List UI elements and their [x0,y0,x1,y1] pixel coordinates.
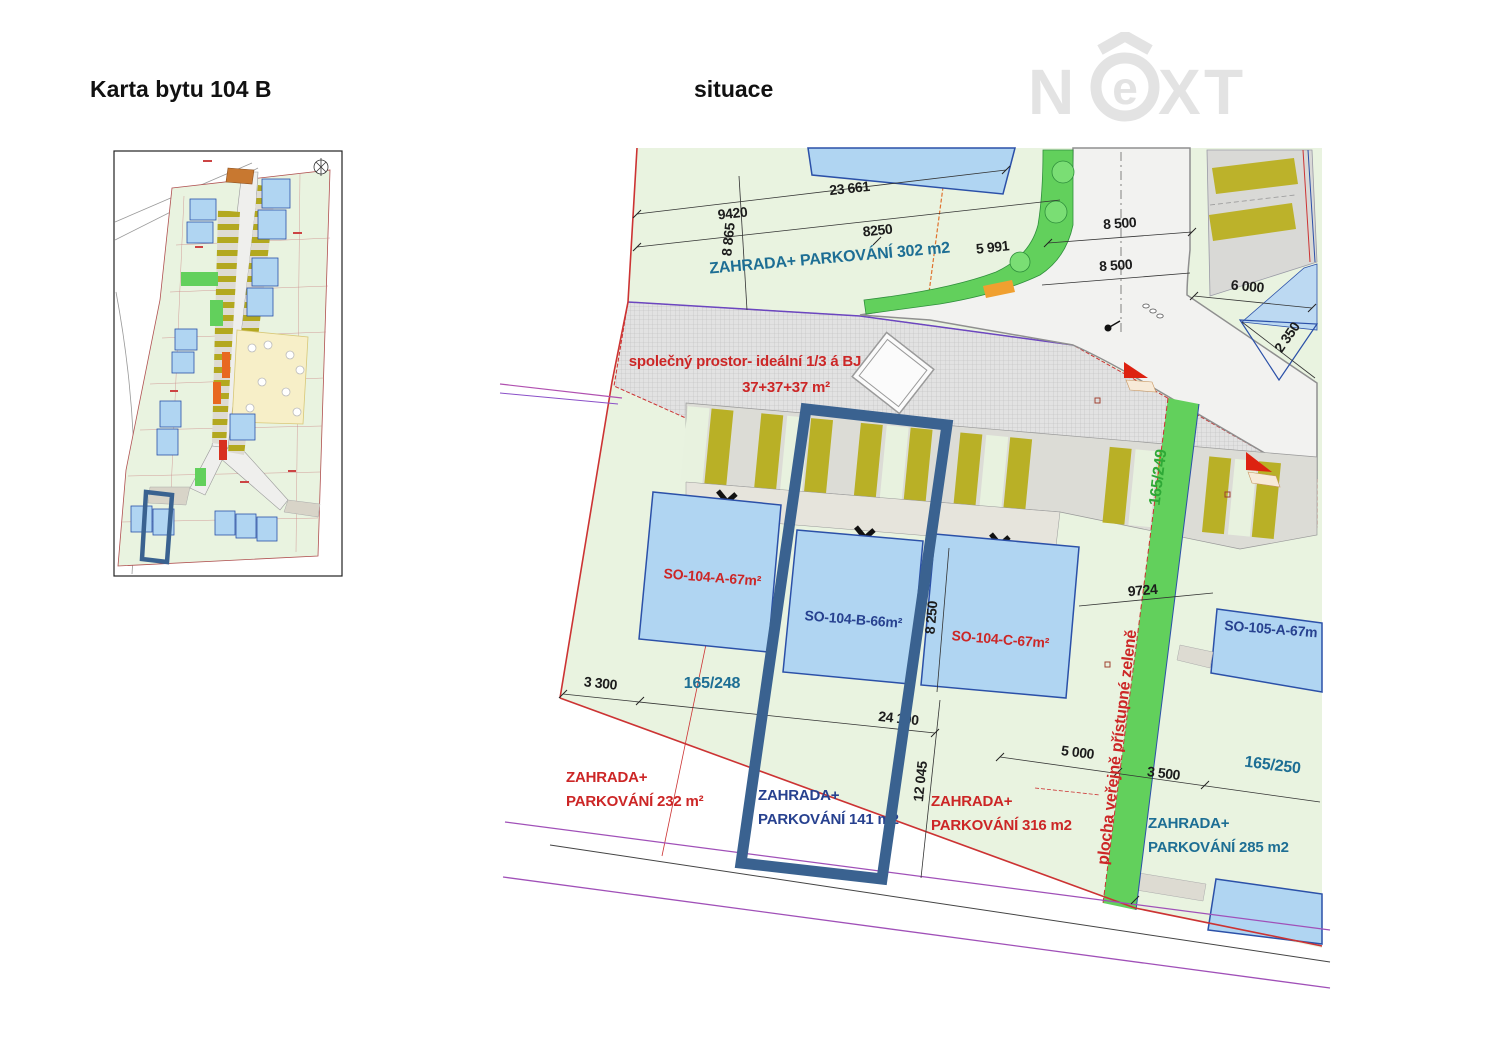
label-zahrada-285-l1: ZAHRADA+ [1148,815,1230,832]
overview-map [113,150,344,578]
drawing-title: situace [694,76,773,103]
building-so-104-c [921,534,1079,698]
label-zahrada-232-l2: PARKOVÁNÍ 232 m² [566,793,704,810]
label-zahrada-141-l2: PARKOVÁNÍ 141 m2 [758,811,899,828]
next-logo: N e X T [1028,32,1243,132]
label-zahrada-316-l1: ZAHRADA+ [931,793,1013,810]
dim-8500-a: 8 500 [1103,214,1138,232]
dim-8250-top: 8250 [862,220,894,239]
dim-9724: 9724 [1127,581,1158,600]
document-page: Karta bytu 104 B situace N e X T [0,0,1500,1059]
label-zahrada-141-l1: ZAHRADA+ [758,787,840,804]
logo-roof-icon [1100,36,1150,50]
site-plan: 23 661 9420 8 865 8250 5 991 8 500 8 500… [490,140,1340,1010]
logo-letter-x: X [1158,56,1201,128]
label-zahrada-316-l2: PARKOVÁNÍ 316 m2 [931,817,1072,834]
building-so-104-b [783,530,923,684]
label-zahrada-285-l2: PARKOVÁNÍ 285 m2 [1148,839,1289,856]
card-title: Karta bytu 104 B [90,76,272,103]
label-common-2: 37+37+37 m² [742,379,830,396]
logo-letter-t: T [1204,56,1243,128]
dim-9420: 9420 [717,203,749,222]
logo-letter-n: N [1028,56,1074,128]
parcel-165-248: 165/248 [684,675,741,692]
dim-8500-b: 8 500 [1099,256,1134,274]
label-common-1: společný prostor- ideální 1/3 á BJ [629,353,861,370]
logo-letter-e: e [1112,62,1138,114]
label-zahrada-232-l1: ZAHRADA+ [566,769,648,786]
dim-6000: 6 000 [1230,277,1265,296]
